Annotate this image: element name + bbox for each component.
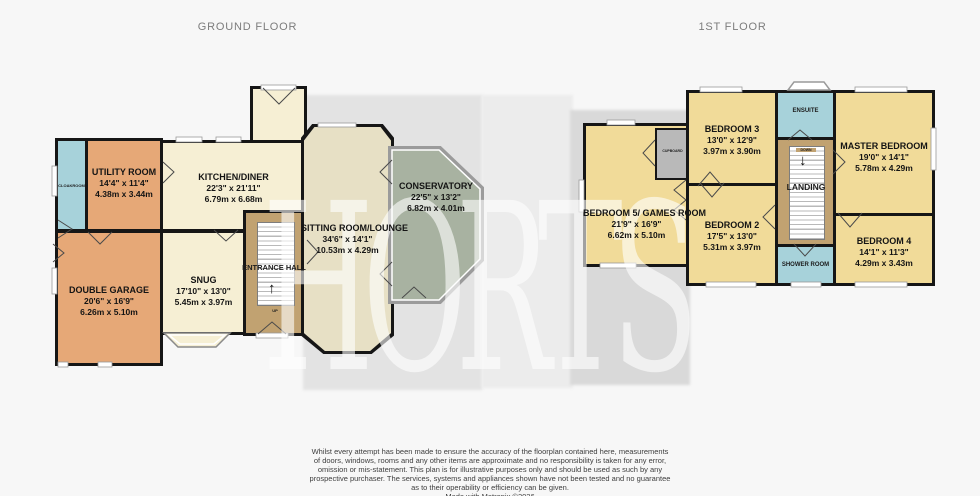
room-size-imperial: 19'0" x 14'1" [833, 152, 935, 163]
master-bedroom-label: MASTER BEDROOM 19'0" x 14'1" 5.78m x 4.2… [833, 141, 935, 174]
room-size-imperial: 13'0" x 12'9" [686, 135, 778, 146]
first-floor-title: 1ST FLOOR [680, 21, 785, 33]
bedroom5-games-room-label: BEDROOM 5/ GAMES ROOM 21'9" x 16'9" 6.62… [583, 208, 690, 241]
room-size-metric: 5.45m x 3.97m [160, 297, 247, 308]
stairs-down-label: DOWN [796, 148, 816, 152]
room-name: BEDROOM 4 [833, 236, 935, 247]
room-name: KITCHEN/DINER [160, 172, 307, 183]
room-size-metric: 3.97m x 3.90m [686, 146, 778, 157]
room-name: MASTER BEDROOM [833, 141, 935, 152]
room-name: BEDROOM 5/ GAMES ROOM [583, 208, 690, 219]
room-size-imperial: 34'6" x 14'1" [301, 234, 394, 245]
bedroom3-label: BEDROOM 3 13'0" x 12'9" 3.97m x 3.90m [686, 124, 778, 157]
room-size-imperial: 20'6" x 16'9" [55, 296, 163, 307]
room-name: BEDROOM 2 [686, 220, 778, 231]
room-name: SNUG [160, 275, 247, 286]
room-size-imperial: 17'10" x 13'0" [160, 286, 247, 297]
disclaimer-line: Whilst every attempt has been made to en… [0, 447, 980, 456]
room-name: UTILITY ROOM [85, 167, 163, 178]
cloakroom-label: CLOAKROOM [55, 183, 88, 188]
room-size-imperial: 14'1" x 11'3" [833, 247, 935, 258]
floor-shadow [482, 95, 573, 388]
ground-floor-title: GROUND FLOOR [175, 21, 320, 33]
bedroom4-label: BEDROOM 4 14'1" x 11'3" 4.29m x 3.43m [833, 236, 935, 269]
disclaimer-text: Whilst every attempt has been made to en… [0, 447, 980, 496]
cupboard-label: CUPBOARD [655, 149, 690, 153]
ensuite-room [775, 90, 836, 140]
bedroom2-label: BEDROOM 2 17'5" x 13'0" 5.31m x 3.97m [686, 220, 778, 253]
porch-room [250, 86, 307, 144]
room-size-metric: 10.53m x 4.29m [301, 245, 394, 256]
room-size-metric: 6.79m x 6.68m [160, 194, 307, 205]
disclaimer-line: prospective purchaser. The services, sys… [0, 474, 980, 483]
kitchen-diner-label: KITCHEN/DINER 22'3" x 21'11" 6.79m x 6.6… [160, 172, 307, 205]
ensuite-bay-window [786, 80, 832, 92]
room-size-metric: 5.78m x 4.29m [833, 163, 935, 174]
room-size-metric: 6.62m x 5.10m [583, 230, 690, 241]
cupboard-room [655, 128, 690, 180]
room-name: CONSERVATORY [390, 181, 482, 192]
room-size-metric: 4.29m x 3.43m [833, 258, 935, 269]
room-size-imperial: 21'9" x 16'9" [583, 219, 690, 230]
utility-room-label: UTILITY ROOM 14'4" x 11'4" 4.38m x 3.44m [85, 167, 163, 200]
shower-room-label: SHOWER ROOM [775, 262, 836, 268]
stairs-up-label: UP [265, 308, 285, 313]
disclaimer-line: omission or mis-statement. This plan is … [0, 465, 980, 474]
disclaimer-line: Made with Metropix ©2026 [0, 492, 980, 496]
staircase-down [789, 146, 825, 240]
room-size-imperial: 22'5" x 13'2" [390, 192, 482, 203]
room-name: SITTING ROOM/LOUNGE [301, 223, 394, 234]
room-size-imperial: 22'3" x 21'11" [160, 183, 307, 194]
snug-bay-window [162, 332, 232, 350]
room-size-metric: 6.26m x 5.10m [55, 307, 163, 318]
ensuite-label: ENSUITE [775, 108, 836, 114]
double-garage-label: DOUBLE GARAGE 20'6" x 16'9" 6.26m x 5.10… [55, 285, 163, 318]
down-arrow-icon: ↓ [799, 153, 807, 168]
snug-label: SNUG 17'10" x 13'0" 5.45m x 3.97m [160, 275, 247, 308]
disclaimer-line: of doors, windows, rooms and any other i… [0, 456, 980, 465]
up-arrow-icon: ↑ [268, 281, 276, 296]
entrance-hall-label: ENTRANCE HALL [232, 263, 316, 272]
room-size-imperial: 14'4" x 11'4" [85, 178, 163, 189]
room-name: BEDROOM 3 [686, 124, 778, 135]
room-size-metric: 6.82m x 4.01m [390, 203, 482, 214]
sitting-room-lounge-label: SITTING ROOM/LOUNGE 34'6" x 14'1" 10.53m… [301, 223, 394, 256]
landing-label: LANDING [770, 182, 842, 192]
conservatory-label: CONSERVATORY 22'5" x 13'2" 6.82m x 4.01m [390, 181, 482, 214]
disclaimer-line: as to their operability or efficiency ca… [0, 483, 980, 492]
room-name: DOUBLE GARAGE [55, 285, 163, 296]
room-size-metric: 5.31m x 3.97m [686, 242, 778, 253]
floorplan-page: GROUND FLOOR 1ST FLOOR ↑ UP DOWN ↓ [0, 0, 980, 496]
room-size-metric: 4.38m x 3.44m [85, 189, 163, 200]
room-size-imperial: 17'5" x 13'0" [686, 231, 778, 242]
